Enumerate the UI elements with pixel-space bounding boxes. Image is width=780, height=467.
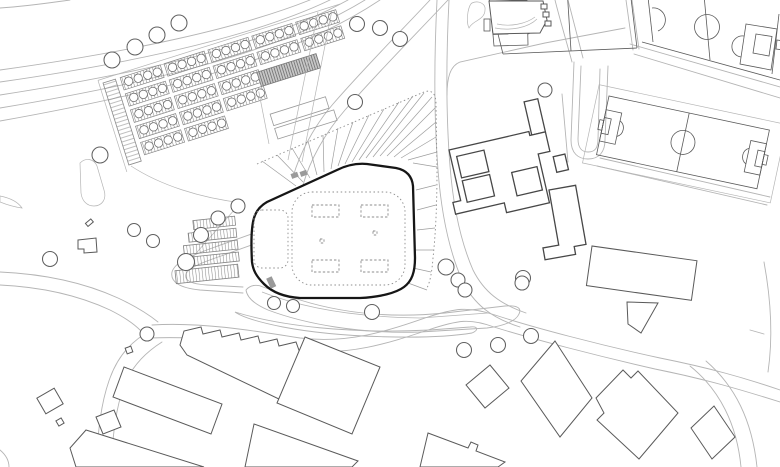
site-plan-drawing: Architectural site plan (0, 0, 780, 467)
gym-building (586, 246, 697, 300)
bush (467, 2, 485, 28)
arena (251, 164, 415, 298)
arena-entrance-mark (290, 172, 298, 179)
mound (80, 159, 105, 206)
site-plan: Architectural site plan (0, 0, 780, 467)
small-structures (0, 159, 133, 426)
garden-boundary (131, 166, 243, 203)
house (78, 238, 97, 253)
parking-rows (170, 216, 241, 283)
arena-entrance-mark (299, 170, 307, 177)
sliver (0, 196, 22, 208)
grandstand-building (489, 1, 551, 34)
football-pitch-b (642, 0, 780, 80)
industrial-buildings (70, 302, 735, 467)
house (37, 388, 63, 414)
